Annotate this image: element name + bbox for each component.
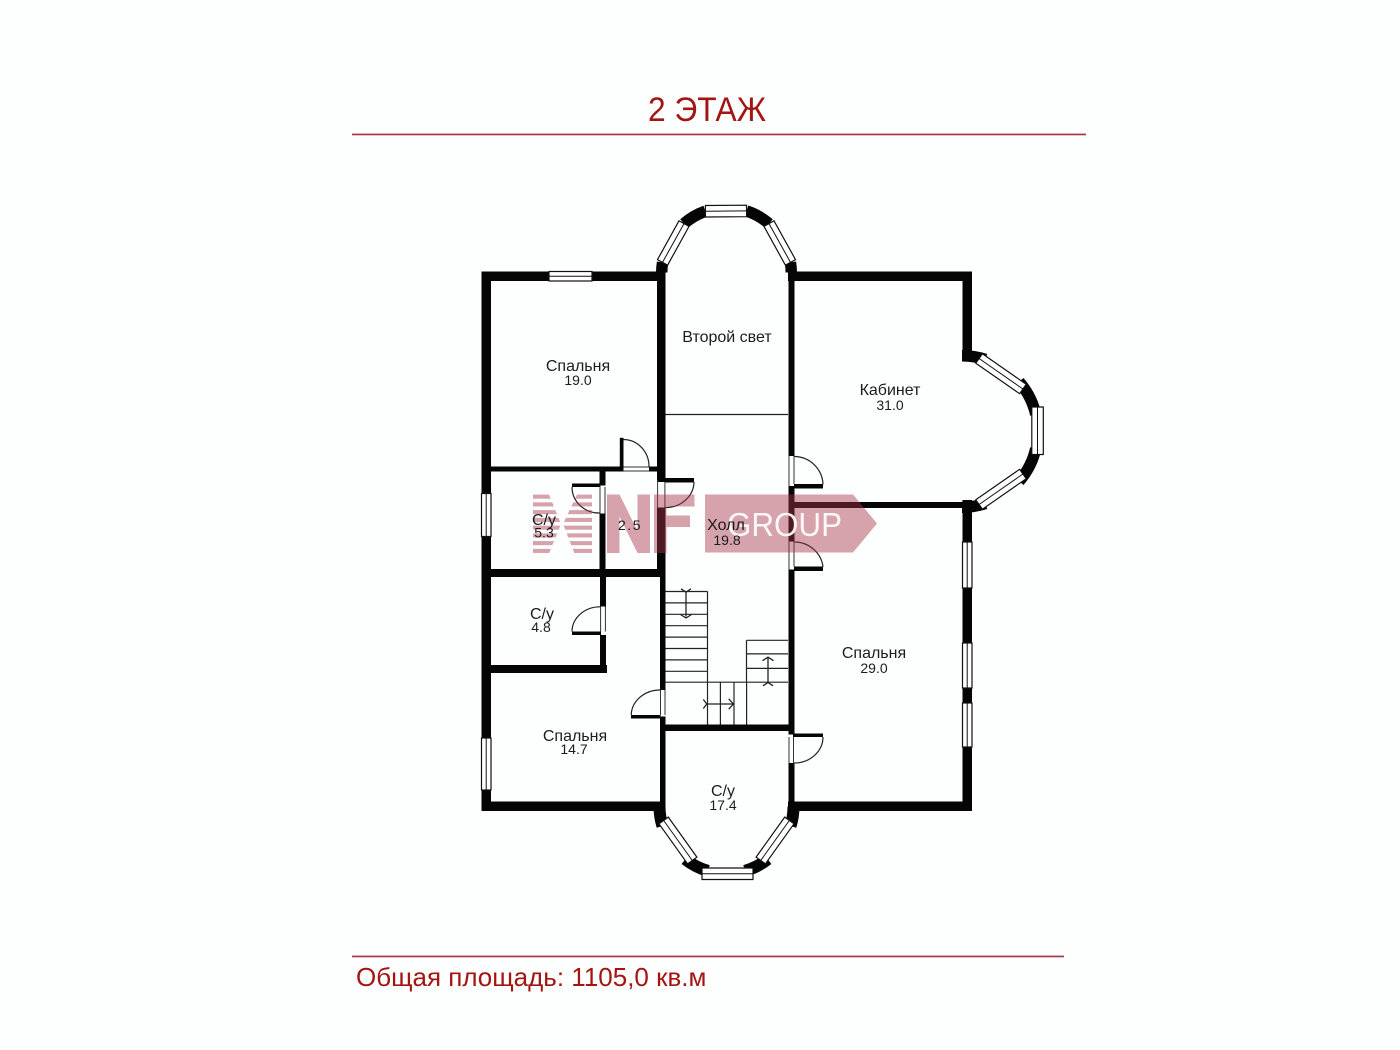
svg-text:2 ЭТАЖ: 2 ЭТАЖ bbox=[648, 91, 766, 129]
svg-text:31.0: 31.0 bbox=[876, 397, 903, 413]
svg-text:14.7: 14.7 bbox=[560, 741, 587, 757]
svg-text:Второй свет: Второй свет bbox=[682, 329, 772, 346]
svg-text:4.8: 4.8 bbox=[531, 619, 551, 635]
svg-text:Общая площадь: 1105,0 кв.м: Общая площадь: 1105,0 кв.м bbox=[356, 962, 706, 992]
svg-text:19.8: 19.8 bbox=[713, 532, 740, 548]
svg-text:2.5: 2.5 bbox=[618, 517, 642, 533]
svg-text:5.3: 5.3 bbox=[534, 525, 554, 541]
svg-text:17.4: 17.4 bbox=[709, 797, 736, 813]
svg-text:29.0: 29.0 bbox=[860, 660, 887, 676]
svg-text:19.0: 19.0 bbox=[564, 372, 591, 388]
